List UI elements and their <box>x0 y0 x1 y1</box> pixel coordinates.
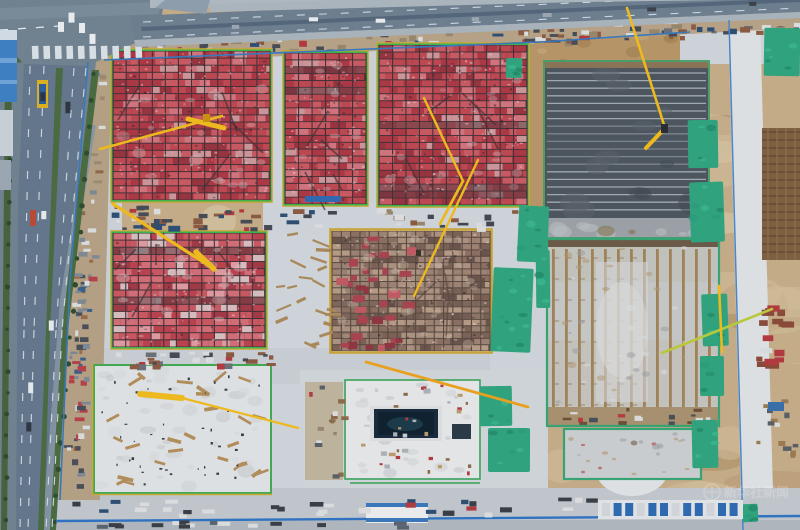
svg-text:新华社新闻: 新华社新闻 <box>724 485 789 500</box>
